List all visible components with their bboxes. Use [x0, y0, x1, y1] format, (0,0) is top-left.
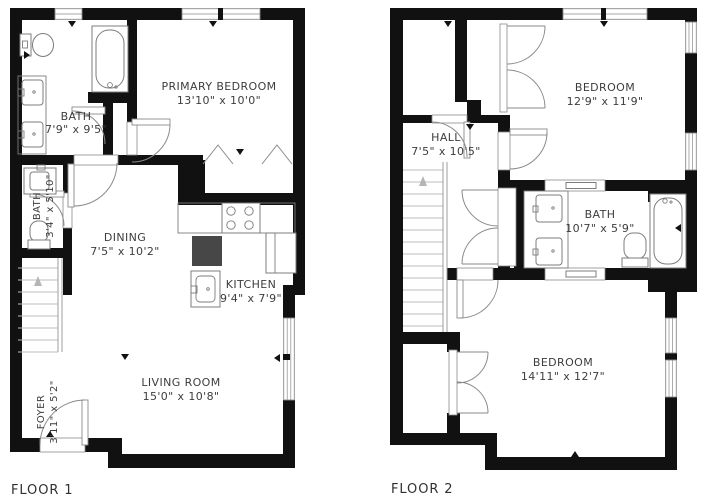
- floor1-labels: BATH 7'9" x 9'5" PRIMARY BEDROOM 13'10" …: [11, 80, 282, 498]
- floor-2-plan: HALL 7'5" x 10'5" BEDROOM 12'9" x 11'9" …: [390, 8, 697, 497]
- door-dining: [68, 163, 117, 207]
- stairs: [18, 258, 62, 352]
- room-dims-primary-bedroom: 13'10" x 10'0": [177, 94, 261, 107]
- double-sink-vanity: [18, 76, 46, 154]
- room-label-foyer: FOYER: [36, 395, 47, 429]
- room-label-hall: HALL: [431, 131, 461, 144]
- double-sink-vanity: [524, 191, 568, 268]
- refrigerator: [266, 233, 296, 273]
- closet-bifold-doors: [203, 145, 292, 164]
- room-label-bedroom-bottom: BEDROOM: [533, 356, 593, 369]
- floorplan-canvas: BATH 7'9" x 9'5" PRIMARY BEDROOM 13'10" …: [0, 0, 707, 500]
- window: [686, 133, 697, 170]
- door-bedroom-top: [510, 129, 547, 169]
- window: [686, 22, 697, 53]
- room-label-kitchen: KITCHEN: [226, 278, 276, 291]
- room-label-primary-bedroom: PRIMARY BEDROOM: [161, 80, 276, 93]
- room-dims-dining: 7'5" x 10'2": [90, 245, 159, 258]
- toilet: [622, 233, 648, 267]
- room-dims-hall: 7'5" x 10'5": [411, 145, 480, 158]
- floorplan-svg: BATH 7'9" x 9'5" PRIMARY BEDROOM 13'10" …: [0, 0, 707, 500]
- room-label-bedroom-top: BEDROOM: [575, 81, 635, 94]
- room-dims-living: 15'0" x 10'8": [143, 390, 220, 403]
- stairs-up-arrow: [419, 176, 427, 186]
- window: [55, 9, 82, 20]
- kitchen-island: [192, 236, 222, 266]
- pocket-door: [566, 183, 596, 189]
- floor1-fixtures: [18, 26, 296, 307]
- room-label-bath-small: BATH: [32, 192, 43, 220]
- room-label-bath-main: BATH: [61, 110, 92, 123]
- floor-1-plan: BATH 7'9" x 9'5" PRIMARY BEDROOM 13'10" …: [10, 8, 305, 498]
- room-label-dining: DINING: [104, 231, 146, 244]
- room-label-living: LIVING ROOM: [141, 376, 220, 389]
- room-dims-bedroom-bottom: 14'11" x 12'7": [521, 370, 605, 383]
- bathtub: [92, 26, 128, 92]
- kitchen-sink: [191, 271, 220, 307]
- closet-french-doors: [457, 352, 488, 413]
- room-dims-bedroom-top: 12'9" x 11'9": [567, 95, 644, 108]
- room-dims-foyer: 3'11" x 5'2": [49, 380, 60, 444]
- door-bedroom-bottom: [457, 280, 498, 318]
- window: [666, 360, 677, 397]
- stove: [222, 203, 260, 233]
- room-dims-kitchen: 9'4" x 7'9": [220, 292, 282, 305]
- stairs-up-arrow: [34, 276, 42, 286]
- window: [182, 8, 260, 20]
- stairs: [403, 162, 447, 332]
- sliding-door-window: [283, 318, 294, 400]
- pocket-door: [566, 271, 596, 277]
- floor2-title: FLOOR 2: [391, 482, 453, 497]
- floor1-title: FLOOR 1: [11, 483, 73, 498]
- closet-french-doors: [507, 26, 545, 108]
- window: [563, 8, 647, 20]
- linen-closet-doors: [462, 190, 498, 264]
- room-dims-bath-small: 3'4" x 5'10": [45, 174, 56, 238]
- room-dims-bath: 10'7" x 5'9": [565, 222, 634, 235]
- window: [666, 318, 677, 353]
- room-dims-bath-main: 7'9" x 9'5": [45, 123, 107, 136]
- room-label-bath: BATH: [585, 208, 616, 221]
